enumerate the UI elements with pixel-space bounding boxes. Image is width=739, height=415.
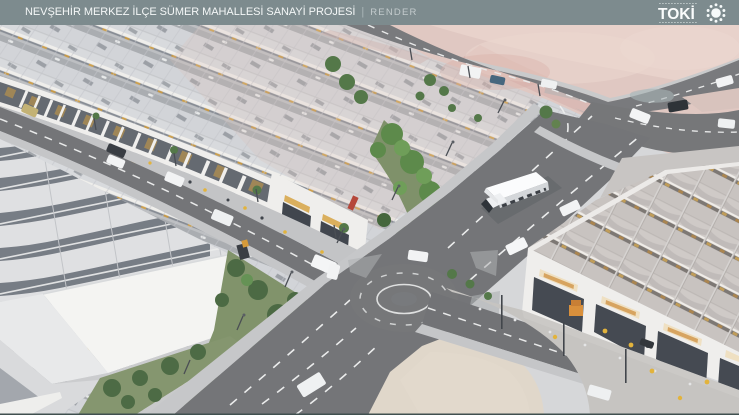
svg-text:TOKİ: TOKİ (658, 6, 695, 23)
